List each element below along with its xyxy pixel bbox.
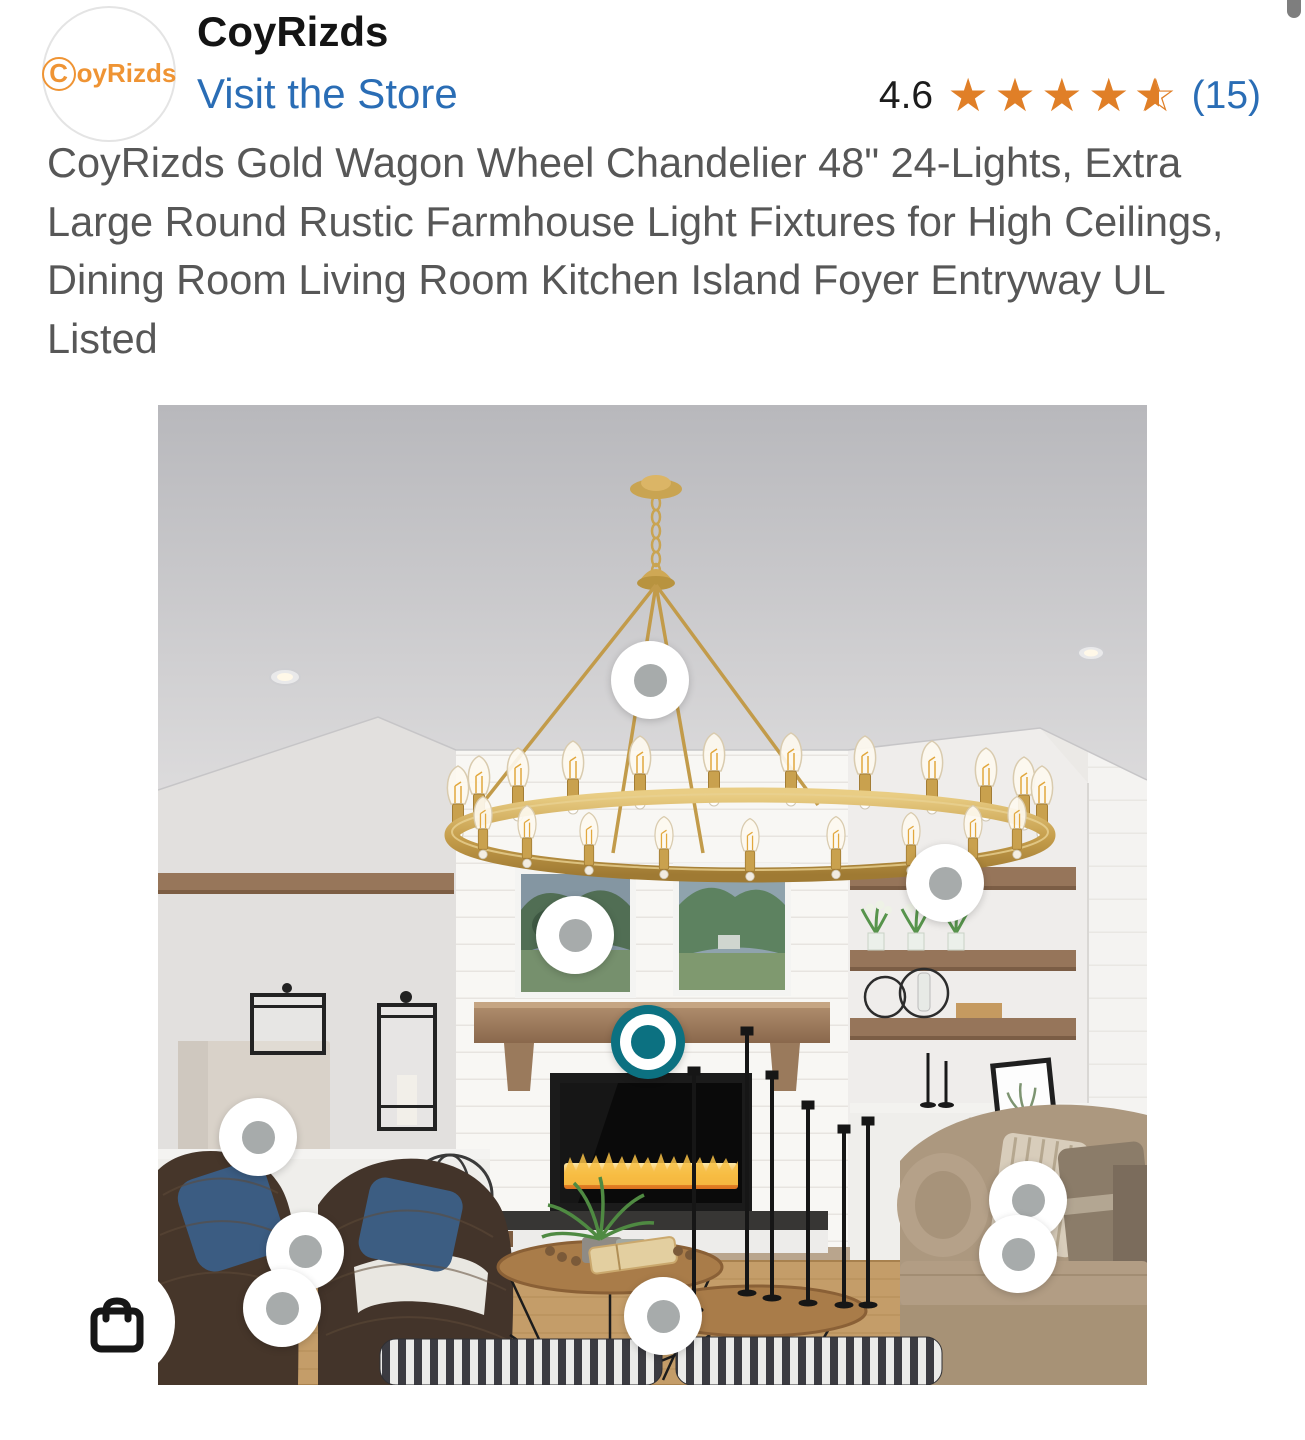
logo-ring: C	[42, 57, 76, 91]
product-page: { "header": { "logo_text": "CoyRizds", "…	[0, 0, 1305, 1440]
hotspot-marker[interactable]	[219, 1098, 297, 1176]
star-icon: ★	[1039, 72, 1086, 118]
product-title: CoyRizds Gold Wagon Wheel Chandelier 48"…	[47, 134, 1265, 368]
product-image[interactable]	[158, 405, 1147, 1385]
star-icon: ★	[945, 72, 992, 118]
visit-store-link[interactable]: Visit the Store	[197, 70, 458, 118]
star-rating-icons: ★★★★☆★	[945, 72, 1180, 118]
hotspot-marker-selected[interactable]	[611, 1005, 685, 1079]
brand-logo[interactable]: CoyRizds	[42, 6, 176, 142]
shopping-bag-icon	[84, 1289, 150, 1355]
hotspot-marker[interactable]	[906, 844, 984, 922]
review-count-link[interactable]: (15)	[1192, 76, 1261, 115]
brand-logo-text: CoyRizds	[42, 57, 177, 91]
rating-score: 4.6	[879, 76, 933, 115]
hotspot-marker[interactable]	[624, 1277, 702, 1355]
star-icon: ★	[1086, 72, 1133, 118]
scrollbar-thumb[interactable]	[1287, 0, 1301, 18]
hotspot-marker[interactable]	[611, 641, 689, 719]
hotspot-marker[interactable]	[536, 896, 614, 974]
brand-name: CoyRizds	[197, 8, 388, 56]
hotspot-marker[interactable]	[979, 1215, 1057, 1293]
shopping-bag-button[interactable]	[59, 1264, 175, 1380]
hotspot-marker[interactable]	[243, 1269, 321, 1347]
star-icon: ☆★	[1133, 72, 1180, 118]
rating-row[interactable]: 4.6 ★★★★☆★ (15)	[879, 72, 1261, 118]
star-icon: ★	[992, 72, 1039, 118]
